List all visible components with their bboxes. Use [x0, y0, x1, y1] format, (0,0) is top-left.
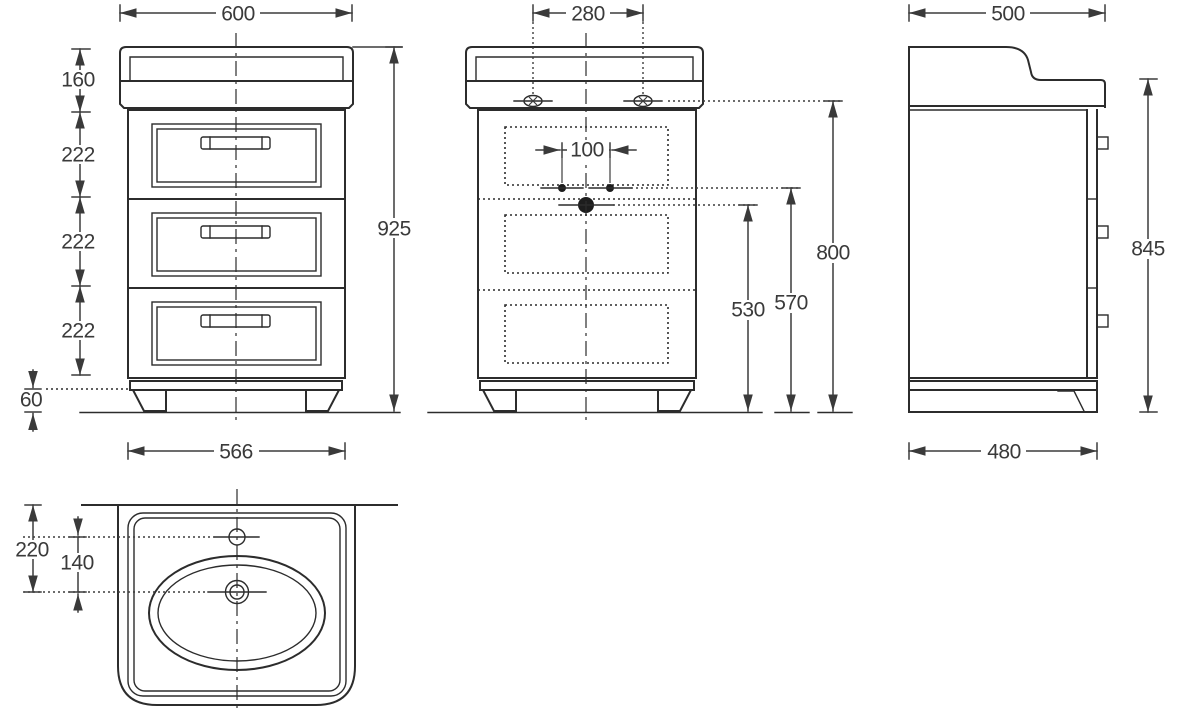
drawer-handle-profile: [1097, 315, 1108, 327]
dim-front-carcass-width: 566: [219, 441, 253, 464]
basin-dimensions: 220 140: [12, 505, 99, 612]
side-leg-detail: [1058, 391, 1084, 411]
dim-front-drawer3-height: 222: [61, 320, 95, 343]
dim-section-fixing-span: 280: [571, 3, 605, 26]
dim-basin-tap-to-drain: 140: [60, 552, 94, 575]
section-fixing-holes: [514, 96, 662, 107]
dim-section-drain-height: 530: [731, 299, 765, 322]
basin-top-view: 220 140: [12, 489, 397, 712]
dim-front-upstand-height: 160: [61, 69, 95, 92]
dim-section-tap-height: 570: [774, 292, 808, 315]
dim-front-drawer1-height: 222: [61, 144, 95, 167]
side-dimensions: 500 845 480: [909, 3, 1172, 464]
section-view: 280 100 530 570: [428, 3, 856, 421]
dim-front-drawer2-height: 222: [61, 231, 95, 254]
dim-front-total-height: 925: [377, 218, 411, 241]
dim-basin-rim-to-drain: 220: [15, 539, 49, 562]
drawing-canvas: 600 160 222 222 222 60: [0, 0, 1177, 712]
drawer-handle-profile: [1097, 226, 1108, 238]
dim-front-plinth-height: 60: [20, 389, 42, 412]
dim-section-fixing-height: 800: [816, 242, 850, 265]
section-hidden-lines: [478, 101, 840, 363]
section-outline: [428, 47, 852, 413]
side-outline: [909, 47, 1108, 412]
side-view: 500 845 480: [909, 3, 1172, 464]
technical-drawing: 600 160 222 222 222 60: [0, 0, 1177, 712]
front-base-and-legs: [46, 381, 400, 413]
front-view: 600 160 222 222 222 60: [20, 3, 417, 464]
dim-section-tap-span: 100: [570, 139, 604, 162]
dim-side-height: 845: [1131, 238, 1165, 261]
front-view-dimensions: 600 160 222 222 222 60: [20, 3, 417, 464]
dim-side-carcass-depth: 480: [987, 441, 1021, 464]
drawer-handle-profile: [1097, 137, 1108, 149]
dim-side-top-depth: 500: [991, 3, 1025, 26]
dim-front-top-width: 600: [221, 3, 255, 26]
basin-outline: [23, 489, 397, 712]
